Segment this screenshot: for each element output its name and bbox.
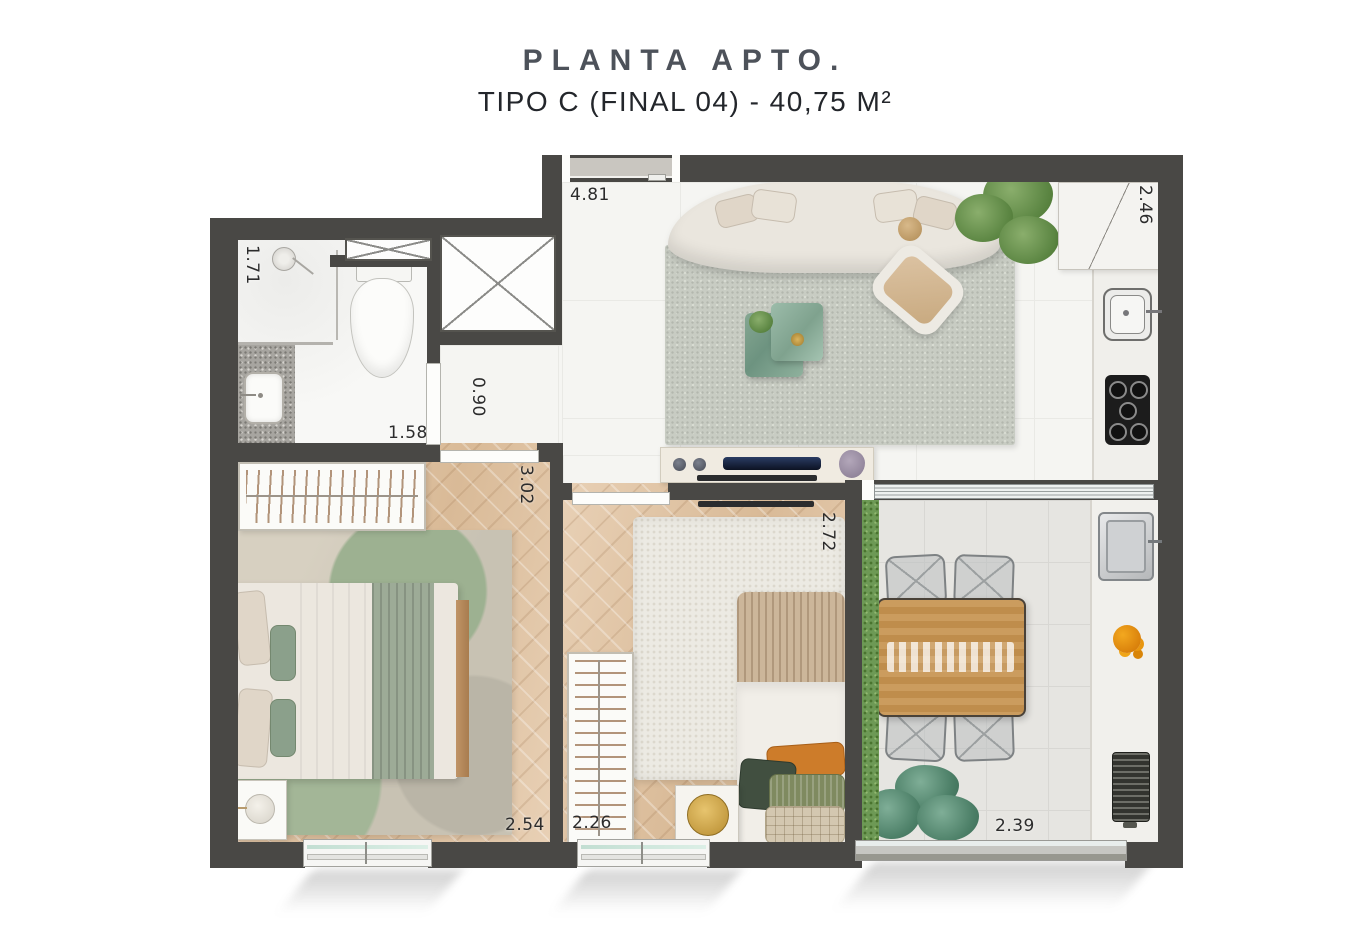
grill xyxy=(1112,752,1150,822)
dimension-bedroom2-length: 2.72 xyxy=(818,512,838,552)
table-runner xyxy=(887,642,1014,672)
kitchen-sink xyxy=(1103,288,1152,341)
wall-bottom xyxy=(707,842,862,868)
cooktop xyxy=(1105,375,1150,445)
bed-accent-pillow xyxy=(270,625,296,681)
speaker xyxy=(693,458,706,471)
wall-bottom xyxy=(1125,842,1183,868)
bedroom2-door xyxy=(572,492,670,505)
bed-throw xyxy=(372,583,434,779)
floor-plan: 4.81 2.46 1.71 1.58 0.90 3.02 2.54 2.72 … xyxy=(210,155,1183,868)
dimension-hallway: 0.90 xyxy=(468,377,488,417)
shower-partition xyxy=(238,342,333,345)
sink-bowl xyxy=(1106,520,1146,573)
bathroom-faucet-dot xyxy=(258,393,263,398)
bathroom-sink xyxy=(244,372,284,424)
burner xyxy=(1119,402,1137,420)
elevator-shaft xyxy=(440,235,556,332)
bedroom2-window xyxy=(577,839,710,867)
basket xyxy=(898,217,922,241)
bed-pillow xyxy=(232,590,272,667)
kitchen-faucet xyxy=(1146,310,1162,313)
dimension-bedroom1-width: 2.54 xyxy=(505,815,545,835)
vertical-garden xyxy=(862,500,879,842)
plant-leaf xyxy=(999,216,1059,264)
burner xyxy=(1130,381,1148,399)
living-tv xyxy=(697,475,817,481)
wall-bottom xyxy=(210,842,305,868)
plant-leaf xyxy=(917,795,979,841)
balcony-sink xyxy=(1098,512,1154,581)
bedroom2-nightstand xyxy=(675,785,739,844)
bedroom1-window xyxy=(303,839,432,867)
dimension-living: 4.81 xyxy=(570,185,610,205)
grill-handle xyxy=(1123,822,1137,828)
living-room-rug xyxy=(665,245,1015,445)
bedroom1-door xyxy=(440,450,539,463)
dimension-kitchen: 2.46 xyxy=(1135,185,1155,225)
console-plant xyxy=(839,450,865,478)
balcony-railing xyxy=(855,840,1127,861)
page-subtitle: TIPO C (FINAL 04) - 40,75 M² xyxy=(0,86,1370,118)
wall-bedroom2-balcony xyxy=(845,480,862,842)
bedroom2-tv xyxy=(698,501,814,507)
exterior-shadow xyxy=(837,862,1153,908)
entry-door-handle xyxy=(648,174,666,181)
bathroom-door xyxy=(426,363,441,445)
exterior-shadow xyxy=(280,870,463,912)
bed-bench xyxy=(456,600,469,777)
coffee-table-upper xyxy=(771,303,823,361)
page-title: PLANTA APTO. xyxy=(0,44,1370,78)
burner xyxy=(1109,423,1127,441)
wall-left xyxy=(210,218,238,868)
burner xyxy=(1130,423,1148,441)
wardrobe-rail xyxy=(598,660,600,836)
sofa-pillow xyxy=(750,188,798,224)
wall-bedrooms-divider xyxy=(550,443,563,868)
balcony-faucet xyxy=(1148,540,1162,543)
corner-plants xyxy=(955,168,1060,266)
dimension-balcony: 2.39 xyxy=(995,816,1035,836)
wall-bedroom2-top xyxy=(668,483,845,500)
wall-right xyxy=(1158,155,1183,868)
bedroom1-wardrobe xyxy=(238,462,426,531)
entry-door-jamb xyxy=(672,155,680,182)
wall-bedroom1-top xyxy=(210,443,440,462)
oranges xyxy=(1113,625,1141,653)
bed-accent-pillow xyxy=(270,699,296,757)
dimension-bedroom2-width: 2.26 xyxy=(572,813,612,833)
wardrobe-hangers xyxy=(575,660,626,836)
hallway-floor xyxy=(440,345,562,443)
speaker xyxy=(673,458,686,471)
burner xyxy=(1109,381,1127,399)
wardrobe-rail xyxy=(246,495,418,497)
bedroom1-nightstand xyxy=(232,780,287,840)
dimension-bedroom1-length: 3.02 xyxy=(516,465,536,505)
gold-tray xyxy=(687,794,729,836)
table-lamp xyxy=(245,794,275,824)
single-bed xyxy=(737,592,845,842)
dimension-bathroom-width: 1.71 xyxy=(242,245,262,285)
double-bed xyxy=(232,583,458,779)
bed-headboard xyxy=(737,592,845,684)
dimension-bathroom-length: 1.58 xyxy=(388,423,428,443)
wall-bedroom2-top xyxy=(563,483,572,500)
bathroom-faucet xyxy=(240,394,256,396)
gold-dish xyxy=(791,333,804,346)
fruit-bowl xyxy=(1113,623,1145,657)
entry-door-jamb xyxy=(562,155,570,182)
exterior-shadow xyxy=(554,870,742,912)
dining-table xyxy=(877,598,1026,717)
bed-pillow xyxy=(233,688,274,769)
sliding-glass-door xyxy=(874,484,1154,499)
balcony-plant xyxy=(865,765,987,842)
duct-shaft xyxy=(345,238,432,261)
kitchen-faucet-dot xyxy=(1123,310,1129,316)
plaid-pillow xyxy=(765,806,845,844)
sliding-door-jamb xyxy=(862,480,874,500)
sofa xyxy=(668,181,1000,273)
floor-plan-page: PLANTA APTO. TIPO C (FINAL 04) - 40,75 M… xyxy=(0,0,1370,937)
coffee-table xyxy=(745,303,825,381)
soundbar xyxy=(723,457,821,470)
